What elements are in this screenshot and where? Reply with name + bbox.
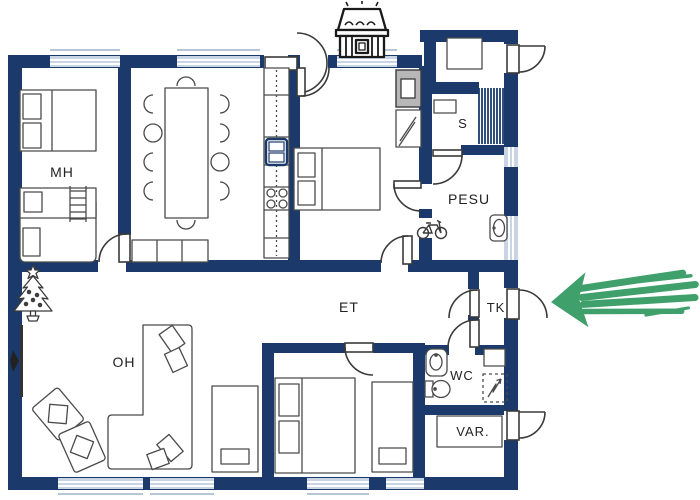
bedroom3-door [345,343,373,375]
wc-cabinet [484,349,505,366]
pesu-toilet [490,215,507,241]
label-wc: WC [450,368,474,383]
label-utility-room: PESU [448,191,490,207]
sauna-bench [434,100,456,113]
tk-inner-door [449,290,479,318]
kitchen-sink [266,139,287,165]
bedroom3-single-bed [372,382,413,472]
shower-mirror [396,110,421,147]
tk-exterior-door [507,289,547,319]
label-storage: VAR. [456,424,489,439]
label-living-room: OH [113,354,136,370]
appliance-slot [483,374,507,402]
pesu-side-door [394,181,421,211]
bedroom3-double-bed [275,378,355,473]
mh-double-bed [20,90,96,151]
dining-table [165,88,208,218]
label-master-bedroom: MH [50,164,74,180]
storage-exterior-door [507,411,545,440]
sauna-pesu-door [433,150,462,184]
highlight-arrow [550,267,698,330]
floor-plan-svg: MH S PESU ET TK OH WC VAR. [0,0,700,500]
l-sofa [108,325,192,470]
bedroom2-hall-door [381,236,412,264]
terrace-exterior-door [507,45,545,73]
bedroom2-bed [294,148,380,210]
label-vestibule: TK [487,300,506,315]
wc-toilet [425,381,450,398]
grill-icon [336,1,388,57]
hall-single-bed [212,386,258,472]
wc-sink [426,349,447,376]
floorplan-canvas: MH S PESU ET TK OH WC VAR. [0,0,700,500]
mh-door [99,234,130,262]
label-sauna: S [458,116,468,131]
bedroom2-entry-door [297,68,329,96]
fireplace [396,70,421,107]
sauna-bench-hatch [479,88,503,144]
wc-corridor-door [448,320,479,348]
bicycle-icon [418,221,447,239]
mh-bunk-bed [20,186,96,262]
terrace-table [447,38,482,69]
label-entry-hall: ET [339,299,359,315]
sideboard [132,240,208,262]
